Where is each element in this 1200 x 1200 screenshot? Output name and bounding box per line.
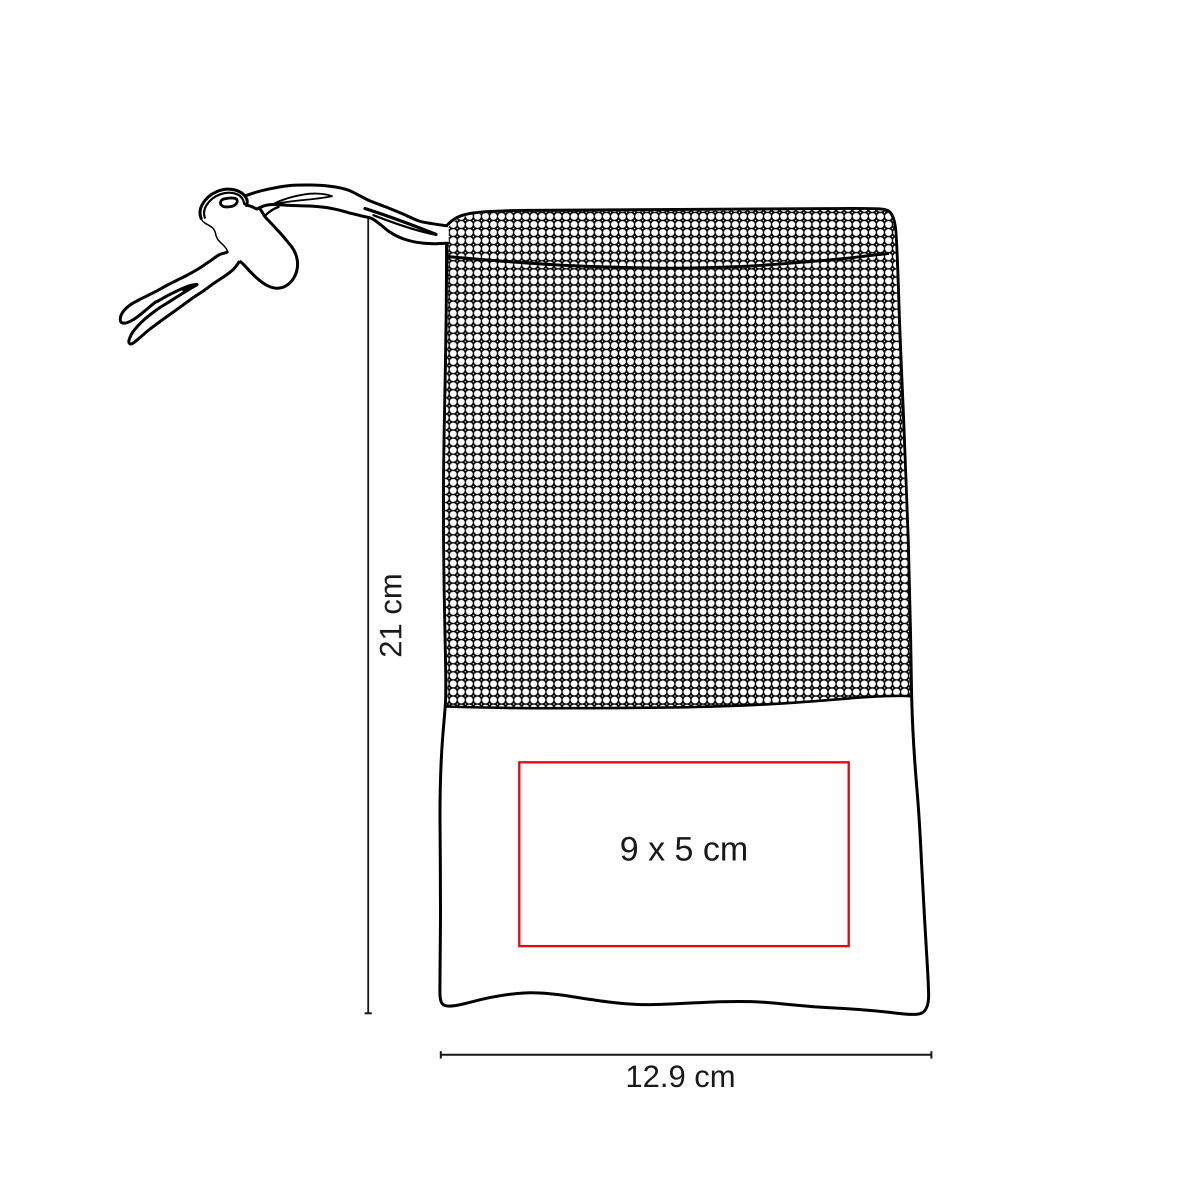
svg-text:21 cm: 21 cm <box>373 573 408 657</box>
svg-text:9 x 5 cm: 9 x 5 cm <box>620 831 748 869</box>
svg-text:12.9 cm: 12.9 cm <box>625 1059 735 1094</box>
